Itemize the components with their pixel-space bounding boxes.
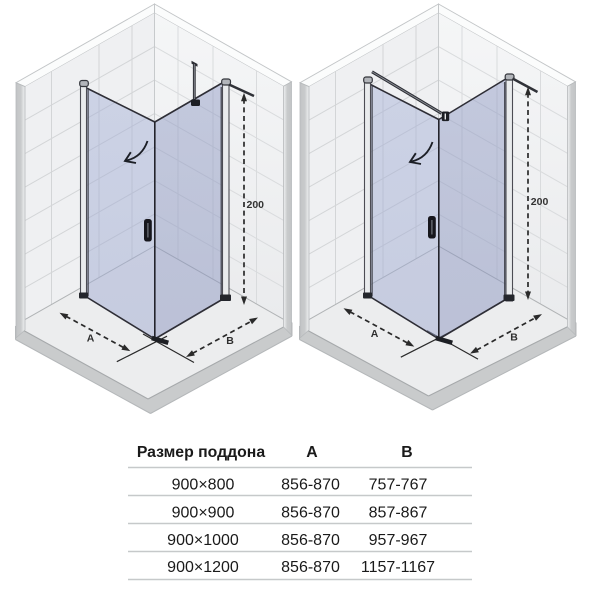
svg-text:А: А <box>371 328 379 340</box>
svg-text:900×800: 900×800 <box>172 477 235 494</box>
svg-text:856-870: 856-870 <box>281 505 340 522</box>
svg-text:А: А <box>87 333 95 345</box>
svg-text:200: 200 <box>531 196 549 208</box>
svg-text:856-870: 856-870 <box>281 559 340 576</box>
svg-text:957-967: 957-967 <box>369 532 428 549</box>
svg-text:856-870: 856-870 <box>281 532 340 549</box>
svg-text:Размер поддона: Размер поддона <box>137 444 266 461</box>
svg-text:900×1000: 900×1000 <box>167 532 239 549</box>
svg-text:А: А <box>306 444 317 461</box>
svg-text:857-867: 857-867 <box>369 505 428 522</box>
svg-text:B: B <box>226 335 234 347</box>
svg-text:900×1200: 900×1200 <box>167 559 239 576</box>
svg-text:200: 200 <box>247 199 265 211</box>
svg-text:900×900: 900×900 <box>172 505 235 522</box>
svg-text:1157-1167: 1157-1167 <box>361 559 435 576</box>
svg-text:В: В <box>401 444 412 461</box>
svg-text:856-870: 856-870 <box>281 477 340 494</box>
svg-text:757-767: 757-767 <box>369 477 428 494</box>
svg-text:B: B <box>510 332 518 344</box>
